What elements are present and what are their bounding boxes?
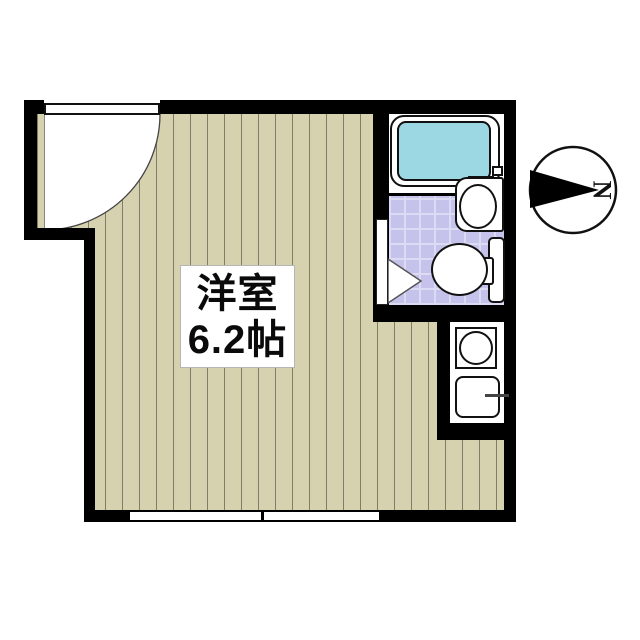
wall-left-upper: [24, 100, 37, 240]
floor-plan: 洋室 6.2帖 N: [0, 0, 640, 640]
gas-burner-ring: [459, 331, 493, 365]
wall-left-lower: [84, 228, 95, 522]
window-center-tick: [261, 510, 264, 522]
room-name: 洋室: [197, 271, 279, 317]
wall-top: [160, 100, 516, 114]
entrance-door-leaf: [44, 103, 160, 115]
room-label: 洋室 6.2帖: [180, 265, 295, 368]
bath-faucet-tap-top: [492, 166, 503, 176]
entrance-door-swing-arc: [44, 114, 162, 232]
toilet-door-opening: [376, 219, 388, 305]
compass-north-letter: N: [588, 181, 617, 200]
bath-toilet-divider-line: [389, 193, 457, 196]
window: [130, 510, 379, 522]
toilet-door-triangle: [388, 257, 424, 305]
wall-kitchen-bottom: [437, 423, 516, 440]
washbasin-bowl: [459, 184, 497, 229]
wall-bottom-right: [379, 510, 516, 522]
outside-area: [0, 240, 84, 640]
compass: N: [527, 144, 623, 239]
kitchen-sink: [455, 376, 500, 418]
bathtub-water: [397, 121, 491, 181]
wall-bottom-left: [84, 510, 130, 522]
toilet-bowl: [431, 243, 488, 296]
kitchen-sink-faucet: [485, 394, 509, 397]
room-size: 6.2帖: [188, 317, 288, 363]
wall-kitchen-left: [437, 305, 450, 440]
